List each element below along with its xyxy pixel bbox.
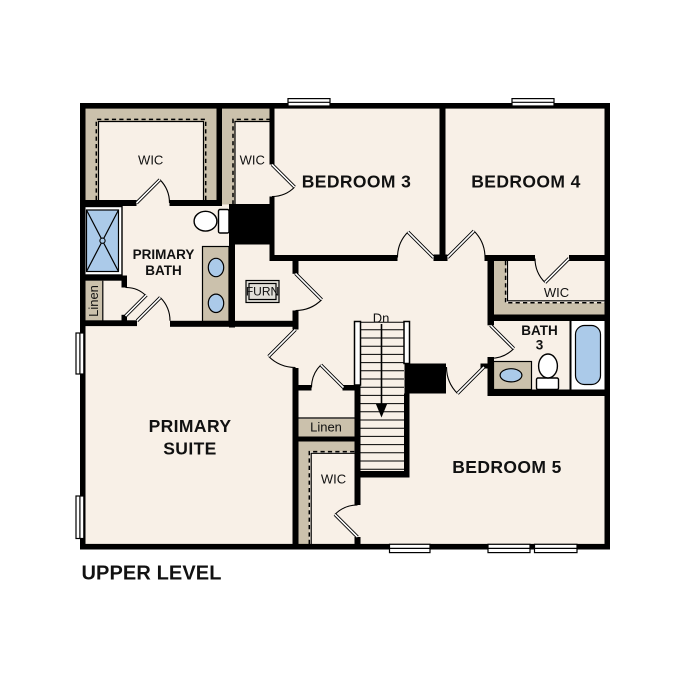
svg-text:WIC: WIC <box>544 285 569 300</box>
svg-text:BATH: BATH <box>145 263 182 278</box>
svg-text:UPPER LEVEL: UPPER LEVEL <box>82 563 222 585</box>
svg-text:BEDROOM 4: BEDROOM 4 <box>471 172 581 192</box>
svg-text:PRIMARY: PRIMARY <box>133 247 195 262</box>
svg-text:Dn: Dn <box>373 311 390 326</box>
svg-text:Linen: Linen <box>86 285 101 317</box>
svg-text:3: 3 <box>536 337 544 352</box>
svg-text:SUITE: SUITE <box>163 438 217 458</box>
svg-text:FURN: FURN <box>246 285 279 299</box>
svg-text:WIC: WIC <box>321 471 346 486</box>
svg-text:BEDROOM 5: BEDROOM 5 <box>452 457 562 477</box>
svg-text:BATH: BATH <box>521 323 558 338</box>
svg-text:BEDROOM 3: BEDROOM 3 <box>302 172 412 192</box>
svg-text:WIC: WIC <box>138 153 163 168</box>
svg-text:Linen: Linen <box>310 420 342 435</box>
svg-text:PRIMARY: PRIMARY <box>149 416 232 436</box>
svg-text:WIC: WIC <box>240 153 265 168</box>
